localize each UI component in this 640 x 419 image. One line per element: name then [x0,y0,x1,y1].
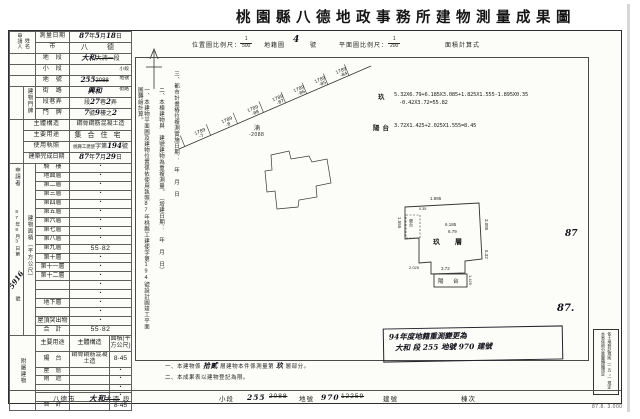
calc-row2-label: 陽台 [373,122,392,132]
door-group-label: 建物門牌 [24,87,36,120]
floor-area-value: 55·82 [70,326,132,335]
bottom-note-1-pre: 一、本建物係 [165,364,201,370]
floor-area-value: ・ [70,218,132,227]
value-seg: 桃縣工建使 [73,144,95,149]
bottom-note-1-post: 層部分。 [286,364,310,370]
row-label: 段巷弄 [36,98,70,109]
floor-label: 第九層 [36,245,70,254]
row-value: 八 德 [70,43,132,54]
row-label: 市 [36,43,70,54]
attached-structure [70,376,110,385]
row-value: 桃縣工建使字第194號 [70,142,132,153]
dim-balcony-side: 1.425 [468,275,473,285]
dim-left: 1.555 [397,217,402,228]
attached-use: 屋 簷 [36,367,70,376]
floor-area-value: ・ [70,227,132,236]
value-seg: 號 [122,144,128,150]
row-label: 測量日期 [36,32,70,43]
floor-area-value: ・ [70,200,132,209]
floor-label [36,281,70,290]
value-seg: 小段 [119,67,131,73]
value-seg: 日 [116,155,122,161]
floor-area-value: ・ [70,209,132,218]
floor-area-value: ・ [70,191,132,200]
footer-seg: 大和 [89,393,106,404]
attached-use: 雨 遮 [36,376,70,385]
value-seg: 街路 [119,87,131,93]
cadastral-map-label: 地籍圖 [264,40,285,49]
floor-label: 第四層 [36,200,70,209]
calc-row2-line1: 3.72X1.425+2.025X1.555=8.45 [394,123,476,129]
cell [10,120,24,164]
dim-width-1: 6.185 [445,222,456,227]
value-seg: 29 [106,153,116,162]
dim-top: 1.895 [430,196,441,201]
attached-use: 陽 台 [36,351,70,367]
floor-plan-balcony-label: 陽 台 [438,277,461,285]
row-value: 87年7月29日 [70,153,132,164]
footer-seg: 八德市 [53,393,76,403]
row-label: 使用執照 [24,142,70,153]
right-note-col-2: 本案係照分層圖轉繪規定 [601,332,605,394]
footer-seg: 段 [123,393,131,403]
value-seg: 27 [90,98,100,107]
calc-row1-line2: -0.42X3.72=55.82 [399,100,448,106]
floor-area-value: ・ [70,236,132,245]
map-frame [135,57,589,361]
floor-label: 屋頂突出物 [36,317,70,326]
plan-scale-label: 平面圖比例尺： [339,40,388,49]
cadastral-sheet-number: 4 [293,35,299,45]
value-seg: 255 [81,76,96,85]
floor-label: 第六層 [36,218,70,227]
footer-seg: 12259 [341,393,364,400]
location-scale-fraction: 1 500 [240,37,252,49]
bottom-note-1-floors: 拾貳 [203,361,218,370]
attached-structure [70,367,110,376]
row-label: 主要用途 [24,131,70,142]
right-note-col-1: 依土地登記規則（一五○）規定 [607,332,611,394]
footer-seg: 大湳 [105,393,120,403]
bottom-note-1-floor: 玖 [276,361,284,370]
footer-seg: 建號 [383,393,398,403]
row-label: 小 段 [36,65,70,76]
dim-right-upper: 3.085 [484,219,489,230]
value-seg: 集合住宅 [75,132,127,139]
attached-area: ・ [110,376,132,385]
row-label: 地 段 [36,54,70,65]
floor-area-value: ・ [70,254,132,263]
footer-seg: 255 [247,393,266,402]
cell [10,87,24,120]
area-calc-label: 面積計算式 [445,40,480,49]
attached-structure: 鋼骨鋼筋混凝土造 [70,351,110,367]
margin-mark-87b: 87. [557,303,574,314]
floor-area-value: ・ [70,281,132,290]
resurvey-change-stamp: 94年度地籍重測變更為 大和 段 255 地號 970 建號 [383,325,564,362]
row-label: 主體構造 [24,120,70,131]
attached-header: 面積(平方公尺) [110,335,132,351]
bottom-note-2: 二、本成果表以建物登記為限。 [165,373,249,381]
floor-plan-room-label: 玖 層 [433,237,466,247]
row-value: 段27巷2弄 [70,98,132,109]
value-seg: 87 [79,153,89,162]
row-label: 建築完成日期 [24,153,70,164]
floor-area-value: ・ [70,263,132,272]
survey-table-body: 申請人姓名測量日期87年5月18日市八 德地 段大和大湳一段小 段小段地 號25… [10,32,132,411]
floor-label: 合 計 [36,326,70,335]
floor-plan-small-balcony-label: 陽台 [408,219,414,227]
value-seg: 弄 [111,100,117,106]
dim-right: 5.32 [484,250,489,259]
floor-label [36,290,70,299]
value-seg: 日 [116,34,122,40]
footer-seg: 2088 [269,393,287,400]
value-seg: 鋼骨鋼筋混凝土造 [77,121,125,127]
scan-edge-artifact [627,4,630,412]
row-label: 地 號 [36,76,70,87]
cadastral-sheet-unit: 號 [310,40,317,49]
stamp-line-2: 大和 段 255 地號 970 建號 [389,340,557,354]
cell [10,54,36,65]
applicant-name-box: 申請人姓名 [10,32,36,54]
survey-table: 申請人姓名測量日期87年5月18日市八 德地 段大和大湳一段小 段小段地 號25… [9,31,132,411]
floor-label: 第五層 [36,209,70,218]
row-value: 集合住宅 [70,131,132,142]
value-seg: 大和 [81,54,95,63]
dim-left-2: 2.025 [409,265,419,270]
floor-area-value: ・ [70,182,132,191]
dim-width-2: 6.79 [448,229,457,234]
footer-seg: 棟次 [461,393,476,403]
right-note-box: 依土地登記規則（一五○）規定 本案係照分層圖轉繪規定 [593,329,619,395]
form-sheet: 1789-71789-81789-881789-871789-861789-85… [8,30,622,404]
row-label: 門 牌 [36,109,70,120]
scanned-survey-form: 桃園縣八德地政事務所建物測量成果圖 1789-71789-81789-88178… [0,0,640,419]
value-seg: 樓之 [100,111,112,117]
dim-bottom: 3.72 [441,266,450,271]
calc-row1-label: 玖 [378,91,388,101]
floor-area-value: ・ [70,290,132,299]
print-code: 87.8. 3.000 [592,404,623,410]
calc-row1-line1: 5.32X6.79+6.185X3.085+1.825X1.555-1.895X… [394,92,528,98]
row-value: 7號9樓之2 [70,109,132,120]
floor-area-value: ・ [70,308,132,317]
floor-label: 地下層 [36,299,70,308]
value-seg: 18 [106,32,116,41]
value-seg: 字第 [95,144,107,150]
value-seg: 2 [112,109,117,118]
value-seg: 2088 [95,78,108,84]
note-3: 三、都市計畫樁位複測實施日期： 年 月 日 [167,71,179,271]
area-group-label: 建物面積（平方公尺） [24,164,36,336]
value-seg: 八 德 [81,44,120,51]
value-seg: 87 [79,32,89,41]
footer-seg: 小段 [219,393,234,403]
note-1: 一、本建物平面圖及建物位置係依使用執照87年桃縣工建使字第194號設計圖竣工平面… [137,87,149,335]
floor-area-value: ・ [70,173,132,182]
floor-label: 第三層 [36,191,70,200]
value-seg: 地號 [119,76,131,82]
floor-label: 第七層 [36,227,70,236]
row-value: 87年5月18日 [70,32,132,43]
floor-area-value: 55·82 [70,245,132,254]
row-label: 街 路 [36,87,70,98]
location-scale-label: 位置圖比例尺： [192,40,241,49]
row-value: 2552088地號 [70,76,132,87]
note-2: 二、本棟建物與 建號建物為重複測量。（增建日期： 年 月 日） [152,87,164,307]
receipt-margin: 申請者87年8月3日第5916號 [10,164,24,336]
floor-label: 第十二層 [36,272,70,281]
floor-label: 第二層 [36,182,70,191]
floor-area-value: ・ [70,272,132,281]
attached-header: 主體構造 [70,335,110,351]
bottom-note-1-mid: 層建物本件係測量第 [220,364,274,370]
footer-seg: 地號 [299,393,314,403]
value-seg: 段 [114,56,120,62]
bottom-note-1: 一、本建物係 拾貳 層建物本件係測量第 玖 層部分。 [165,361,310,371]
floor-label: 第十一層 [36,263,70,272]
page-title: 桃園縣八德地政事務所建物測量成果圖 [236,6,576,27]
parcel-number: -2088 [249,132,264,138]
dim-notch: 0.35 [419,207,426,211]
value-seg: 興和 [88,87,102,96]
row-value: 大和大湳一段 [70,54,132,65]
margin-mark-87: 87 [565,229,578,239]
value-seg: 194 [107,142,122,151]
value-seg: 大湳一 [96,56,114,62]
attached-area: ・ [110,367,132,376]
footer-seg: 970 [321,393,340,402]
row-value: 小段 [70,65,132,76]
floor-label: 騎 樓 [36,164,70,173]
floor-area-value: ・ [70,164,132,173]
floor-label: 第八層 [36,236,70,245]
floor-label: 第十層 [36,254,70,263]
row-value: 鋼骨鋼筋混凝土造 [70,120,132,131]
floor-label [36,308,70,317]
floor-area-value: ・ [70,317,132,326]
cell [10,76,36,87]
floor-label: 地面層 [36,173,70,182]
floor-area-value: ・ [70,299,132,308]
attached-header: 主要用途 [36,335,70,351]
parcel-section-char: 湳 [254,123,260,132]
plan-scale-fraction: 1 200 [388,37,400,49]
footer-strip: 八德市大和大湳段小段2552088地號97012259建號棟次 [9,390,621,404]
cell [10,65,36,76]
row-value: 興和街路 [70,87,132,98]
attached-area: 8·45 [110,351,132,367]
